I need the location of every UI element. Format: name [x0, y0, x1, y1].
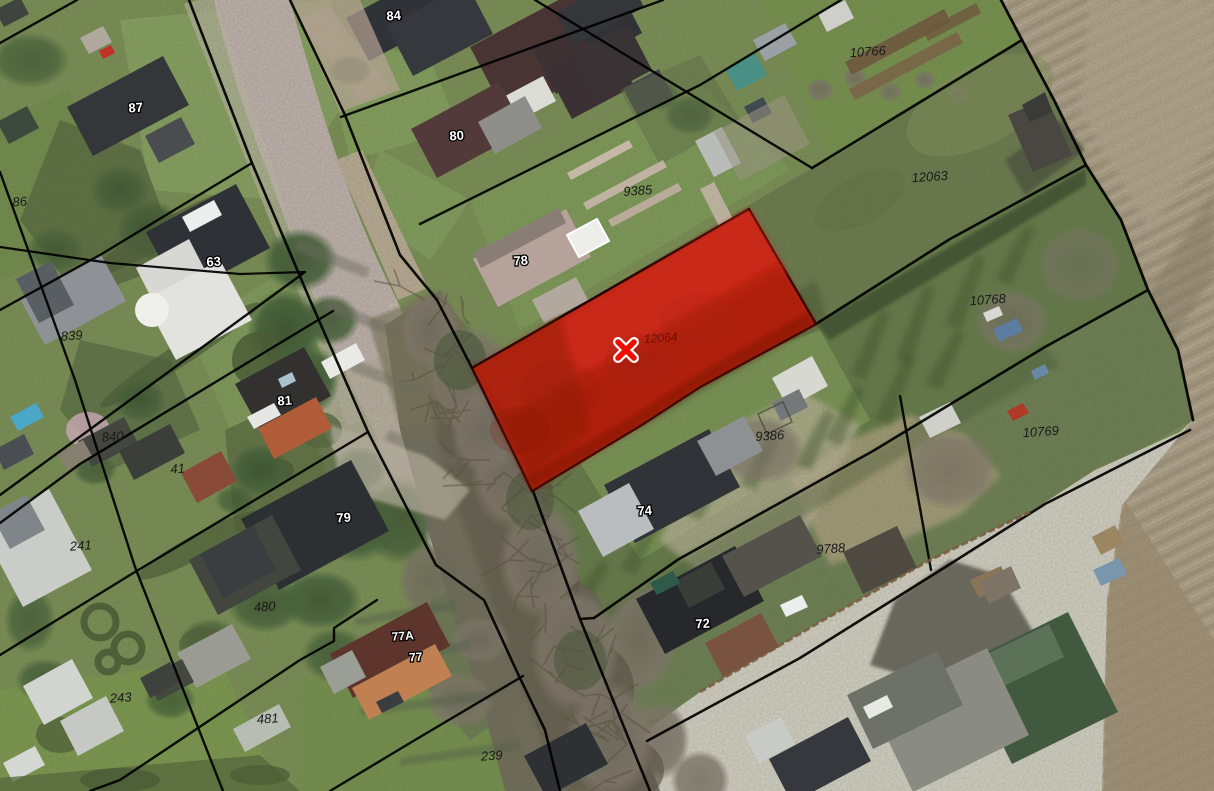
svg-text:10768: 10768 [969, 291, 1007, 309]
svg-text:481: 481 [256, 710, 279, 726]
svg-text:79: 79 [336, 510, 351, 526]
svg-text:480: 480 [253, 598, 276, 615]
svg-text:10766: 10766 [849, 43, 887, 61]
svg-text:63: 63 [206, 254, 221, 270]
svg-text:86: 86 [12, 193, 28, 209]
svg-text:239: 239 [479, 747, 503, 764]
svg-text:241: 241 [68, 537, 92, 554]
svg-text:840: 840 [101, 428, 124, 445]
svg-text:12064: 12064 [644, 330, 679, 346]
svg-text:41: 41 [170, 461, 185, 477]
svg-text:80: 80 [449, 128, 464, 144]
svg-text:9788: 9788 [816, 540, 847, 557]
svg-text:84: 84 [386, 7, 402, 23]
svg-text:87: 87 [128, 100, 143, 116]
svg-text:78: 78 [513, 253, 528, 269]
svg-text:9386: 9386 [755, 427, 786, 444]
svg-text:839: 839 [60, 327, 83, 343]
svg-text:72: 72 [695, 616, 710, 632]
svg-text:243: 243 [108, 689, 132, 706]
svg-text:77: 77 [409, 650, 424, 665]
svg-text:74: 74 [637, 502, 653, 518]
svg-text:77A: 77A [391, 628, 414, 644]
svg-text:81: 81 [277, 393, 292, 409]
svg-text:9385: 9385 [623, 182, 654, 199]
svg-text:12063: 12063 [911, 168, 949, 186]
svg-text:10769: 10769 [1022, 423, 1059, 440]
